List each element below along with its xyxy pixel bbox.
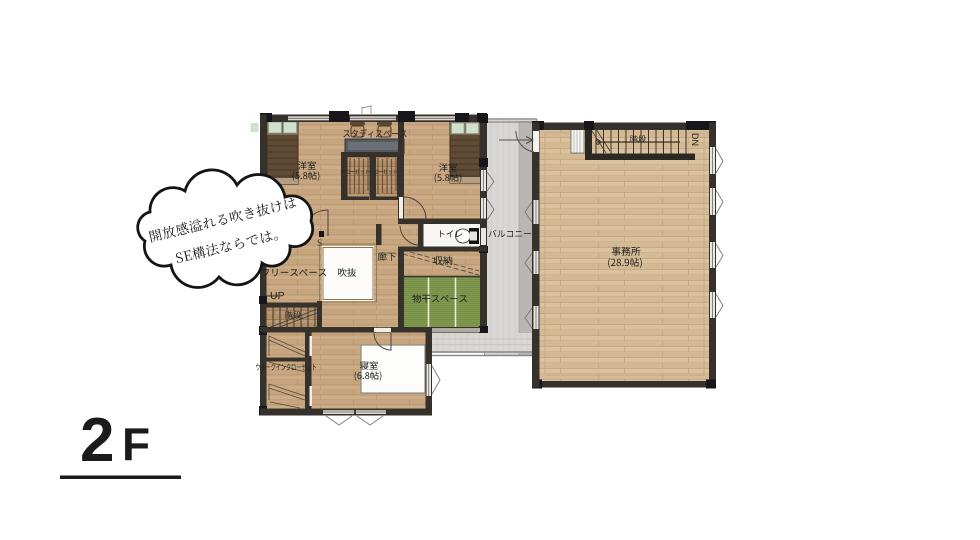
svg-text:S: S xyxy=(317,239,322,249)
svg-text:F: F xyxy=(122,418,150,470)
svg-text:2: 2 xyxy=(80,406,114,475)
svg-text:DN: DN xyxy=(690,133,700,146)
svg-text:UP: UP xyxy=(270,290,285,302)
